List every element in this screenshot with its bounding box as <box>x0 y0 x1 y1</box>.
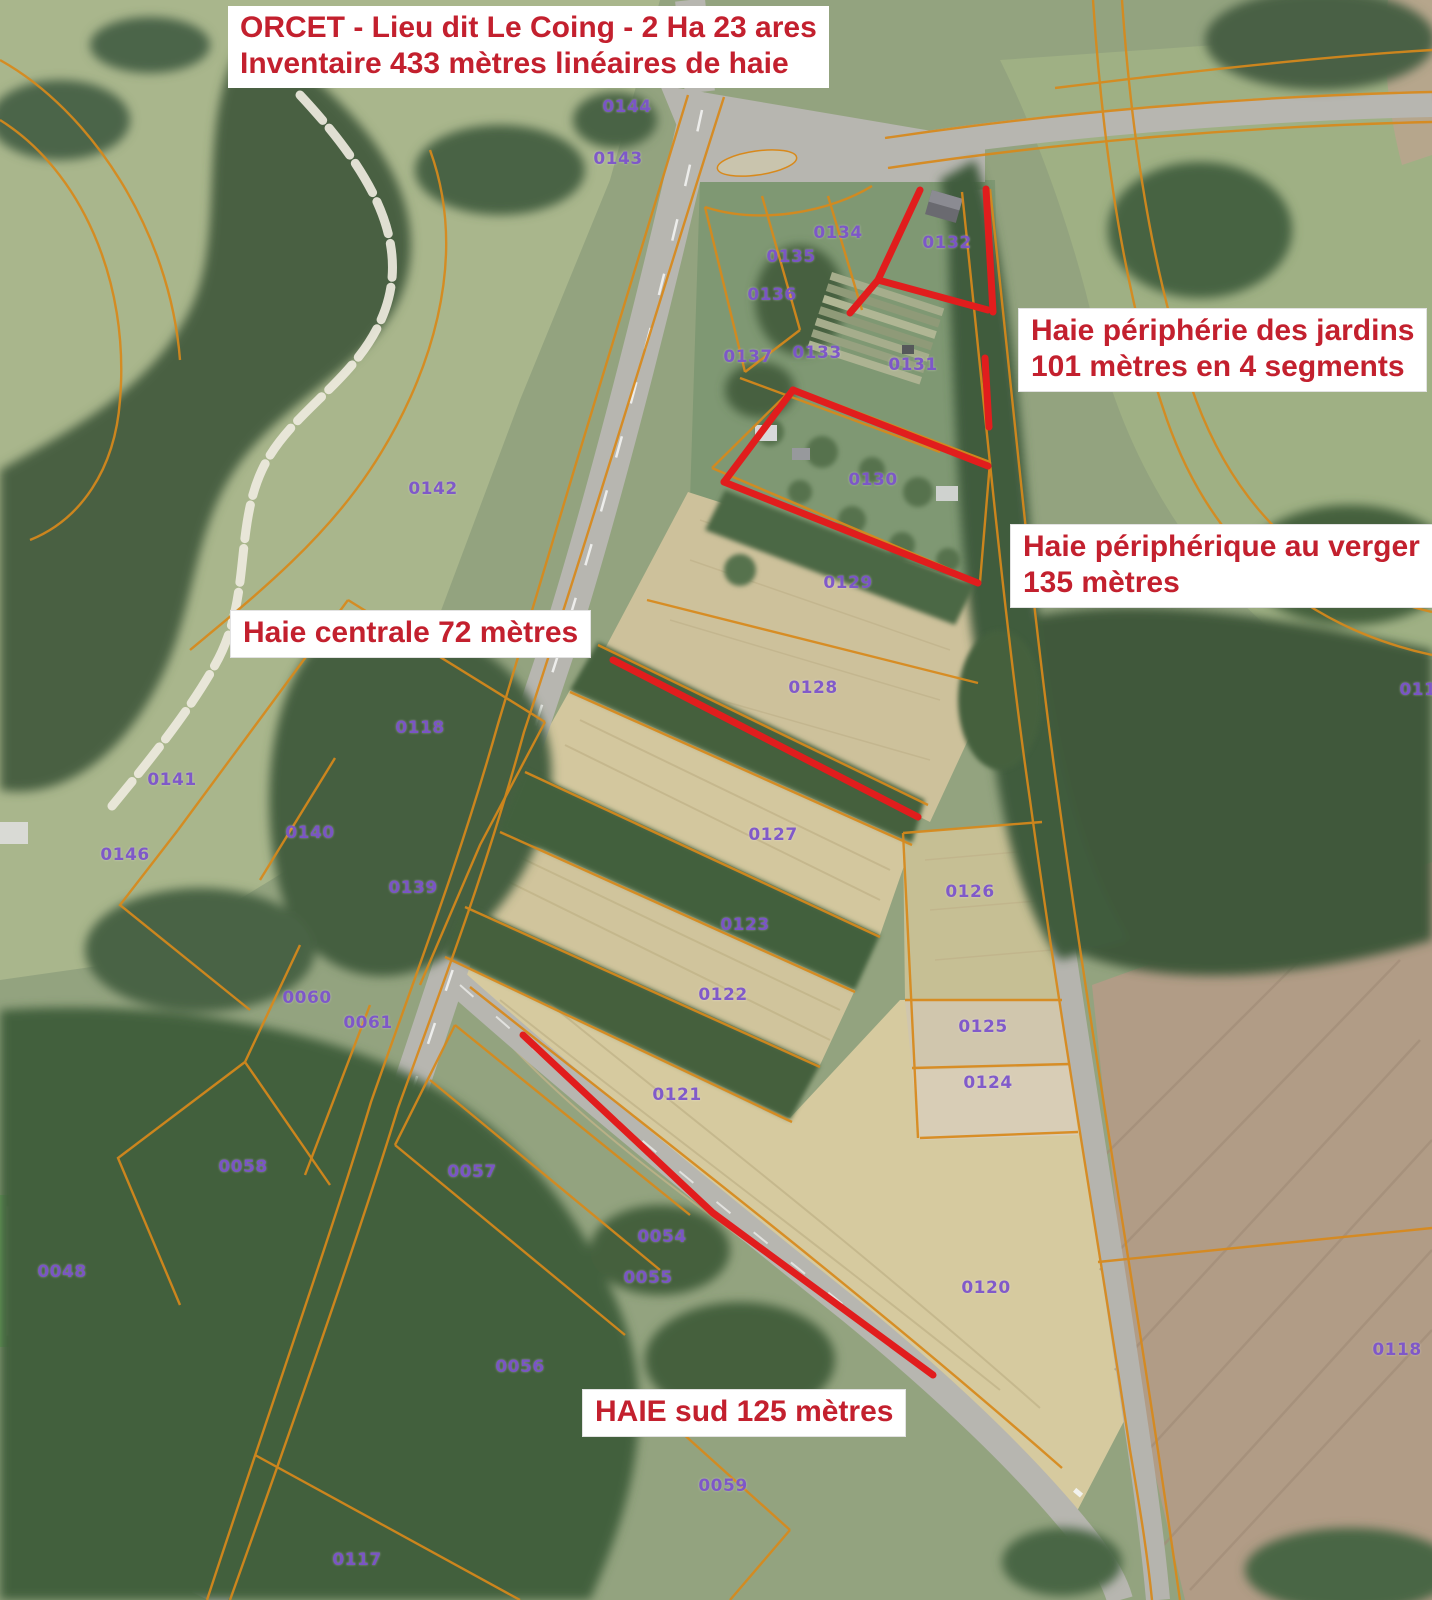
hedge-line-verger-nord <box>793 390 988 466</box>
map-title-line1: ORCET - Lieu dit Le Coing - 2 Ha 23 ares <box>240 10 817 46</box>
annotation-centrale-label: Haie centrale 72 mètres <box>243 615 578 651</box>
hedge-line-jardins-ouest <box>850 190 920 313</box>
hedge-line-jardins-est-haut <box>986 189 993 312</box>
annotation-verger: Haie périphérique au verger 135 mètres <box>1010 524 1432 608</box>
aerial-map: 0144014301340132013501360137013301310142… <box>0 0 1432 1600</box>
hedge-line-verger-sud <box>724 482 978 583</box>
hedge-line-centrale <box>613 660 918 817</box>
annotation-jardins-line2: 101 mètres en 4 segments <box>1031 349 1414 385</box>
annotation-centrale: Haie centrale 72 mètres <box>230 610 591 658</box>
annotation-verger-line1: Haie périphérique au verger <box>1023 529 1420 565</box>
map-title-line2: Inventaire 433 mètres linéaires de haie <box>240 46 817 82</box>
annotation-verger-line2: 135 mètres <box>1023 565 1420 601</box>
annotation-jardins-line1: Haie périphérie des jardins <box>1031 313 1414 349</box>
annotation-jardins: Haie périphérie des jardins 101 mètres e… <box>1018 308 1427 392</box>
map-title: ORCET - Lieu dit Le Coing - 2 Ha 23 ares… <box>228 6 829 88</box>
hedge-line-jardins-est-bas <box>985 358 989 427</box>
hedge-line-verger-ouest <box>724 390 793 482</box>
hedge-line-jardins-centre <box>878 280 988 310</box>
hedge-line-sud <box>523 1035 933 1375</box>
hedge-lines <box>0 0 1432 1600</box>
annotation-sud-label: HAIE sud 125 mètres <box>595 1394 893 1430</box>
annotation-sud: HAIE sud 125 mètres <box>582 1389 906 1437</box>
